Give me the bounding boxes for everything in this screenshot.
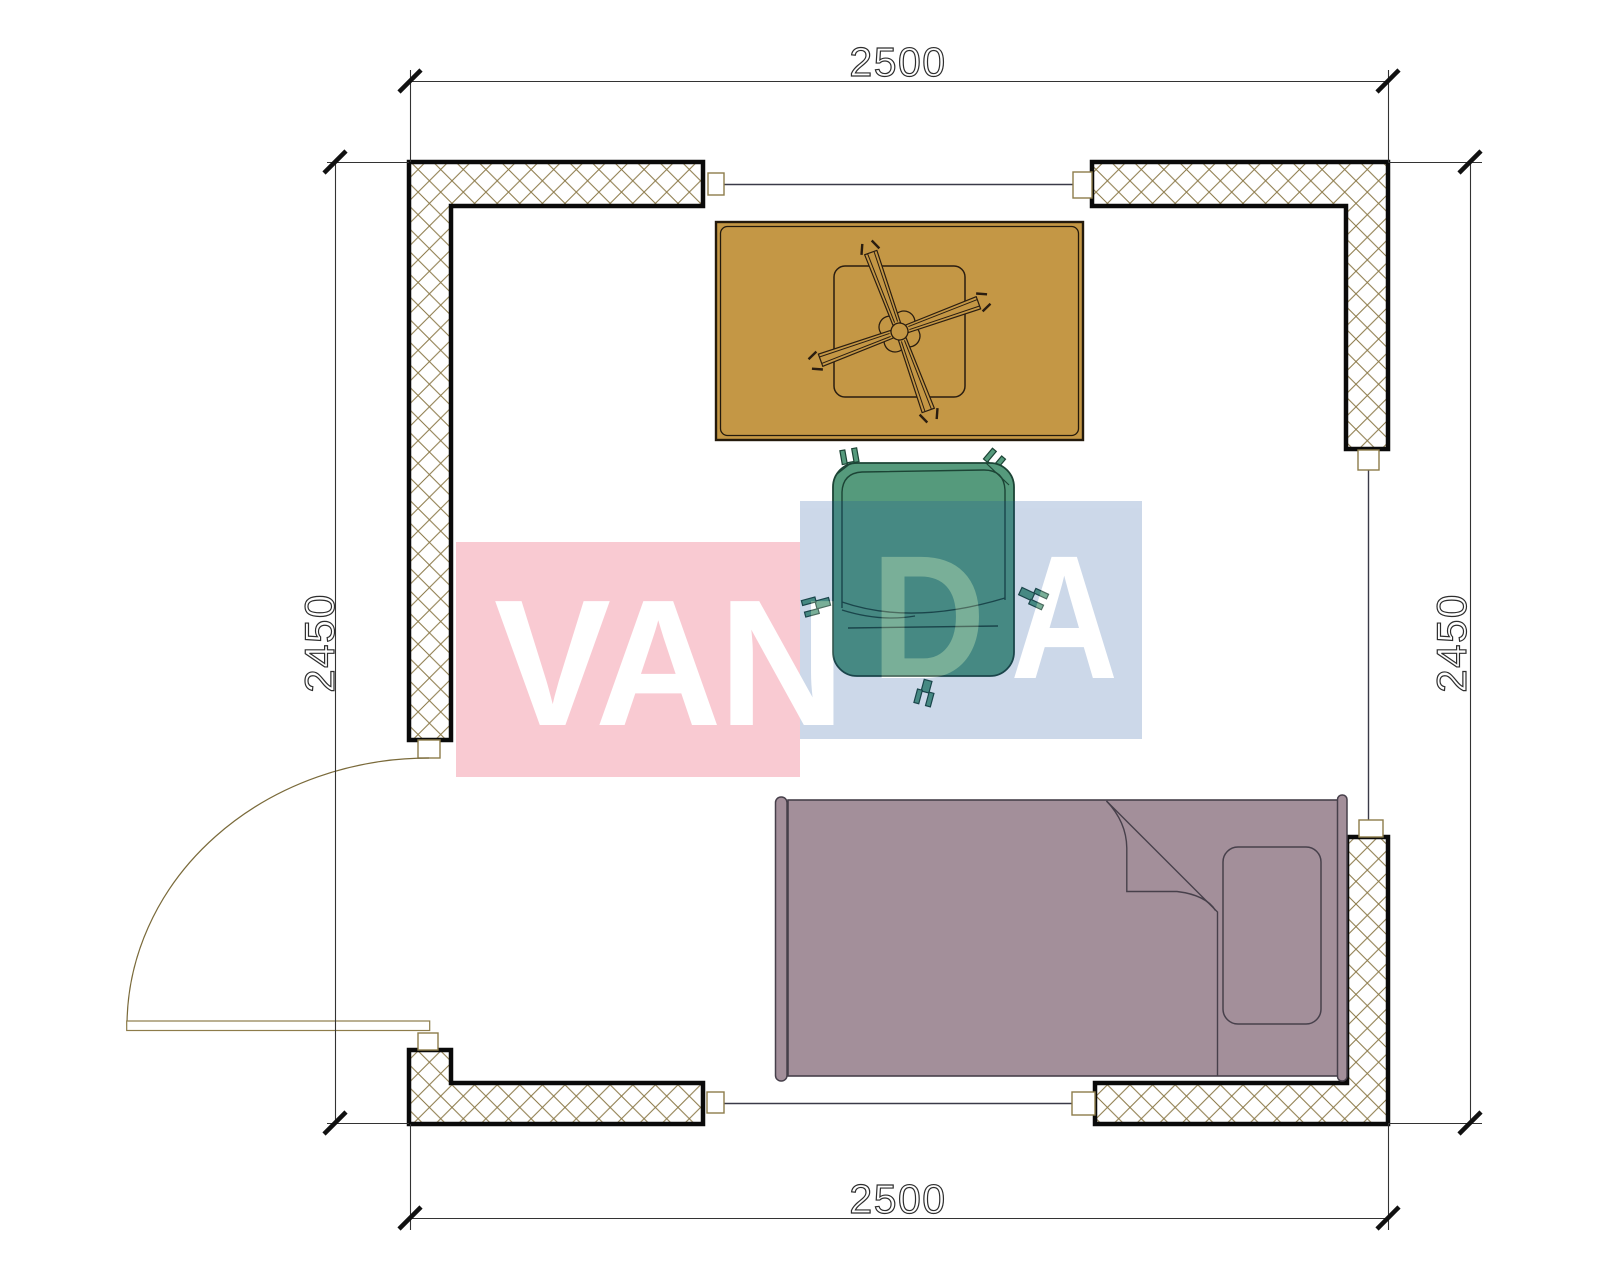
svg-text:2500: 2500 xyxy=(849,1176,946,1222)
svg-text:A: A xyxy=(1011,518,1119,716)
svg-text:2500: 2500 xyxy=(849,39,946,85)
svg-text:D: D xyxy=(871,518,986,715)
svg-text:2450: 2450 xyxy=(1428,593,1475,692)
svg-text:2450: 2450 xyxy=(296,593,343,692)
svg-text:VAN: VAN xyxy=(494,562,842,764)
